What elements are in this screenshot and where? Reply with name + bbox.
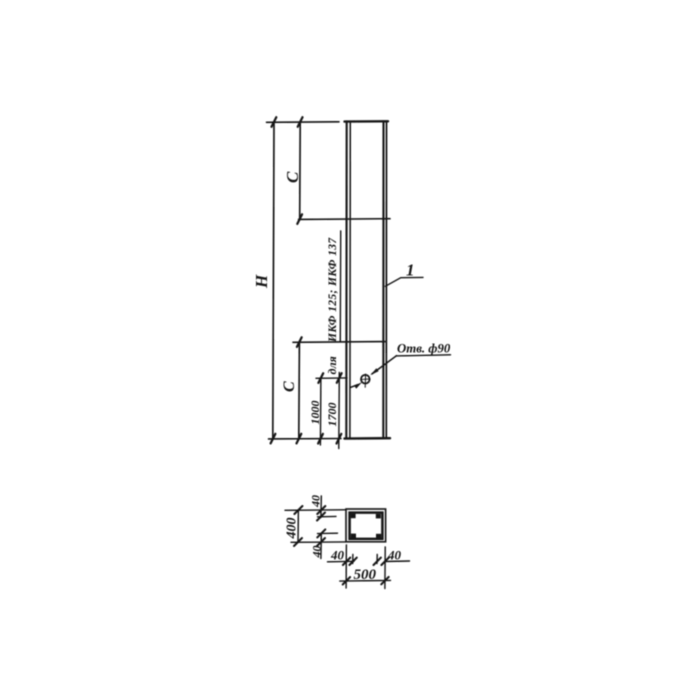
svg-text:C: C [281,381,298,392]
svg-text:1: 1 [406,261,415,280]
svg-text:C: C [283,171,302,183]
svg-text:500: 500 [354,567,377,583]
svg-text:400: 400 [285,518,300,540]
svg-text:ИКФ 125; ИКФ 137: ИКФ 125; ИКФ 137 [327,237,339,343]
svg-text:40: 40 [309,495,323,508]
svg-text:для: для [325,356,339,374]
svg-text:1700: 1700 [325,403,339,427]
svg-text:H: H [252,274,271,289]
svg-text:40: 40 [310,546,324,559]
svg-text:Отв. ф90: Отв. ф90 [397,341,451,355]
svg-text:40: 40 [387,548,402,563]
svg-text:1000: 1000 [308,401,322,425]
svg-text:40: 40 [330,548,345,563]
